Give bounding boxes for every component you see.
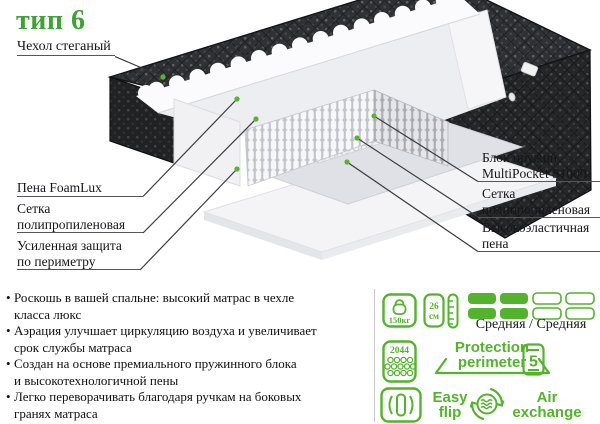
label-mesh-right: Сетка полипропиленовая	[478, 186, 600, 218]
list-item: • Роскошь в вашей спальне: высокий матра…	[6, 290, 348, 323]
svg-text:см: см	[429, 311, 439, 321]
firmness-scale-icon	[468, 292, 596, 320]
easy-flip-label: Easy flip	[427, 391, 473, 420]
firmness-label: Средняя / Средняя	[466, 317, 596, 333]
label-perimeter: Усиленная защита по периметру	[17, 238, 140, 270]
air-line2: exchange	[504, 406, 590, 421]
label-cover: Чехол стеганый	[17, 39, 115, 56]
air-exchange-label: Air exchange	[504, 391, 590, 420]
svg-text:150кг: 150кг	[389, 315, 411, 325]
bullet-text: Создан на основе премиального пружинного…	[14, 356, 348, 389]
bullet-marker: •	[6, 356, 14, 389]
bullet-text: Роскошь в вашей спальне: высокий матрас …	[14, 290, 348, 323]
list-item: • Легко переворачивать благодаря ручкам …	[6, 389, 348, 422]
mattress-infographic: тип 6	[0, 0, 600, 424]
vertical-divider	[374, 289, 375, 422]
bullet-marker: •	[6, 389, 14, 422]
protection-perimeter-label: Protection perimeter	[428, 341, 556, 370]
label-foamlux: Пена FoamLux	[17, 180, 143, 197]
easy-flip-icon	[380, 387, 422, 423]
label-elastic-foam: Высокоэластичная пена	[478, 220, 600, 252]
svg-text:2044: 2044	[390, 346, 409, 356]
bullet-marker: •	[6, 290, 14, 323]
springs-count-icon: 2044	[382, 340, 417, 383]
list-item: • Аэрация улучшает циркуляцию воздуха и …	[6, 323, 348, 356]
protection-line2: perimeter	[428, 356, 556, 371]
bullet-marker: •	[6, 323, 14, 356]
air-exchange-icon	[468, 385, 506, 423]
max-weight-icon: 150кг	[382, 293, 417, 328]
ruler-icon	[447, 293, 459, 329]
bullet-text: Аэрация улучшает циркуляцию воздуха и ув…	[14, 323, 348, 356]
list-item: • Создан на основе премиального пружинно…	[6, 356, 348, 389]
flip-line2: flip	[427, 406, 473, 421]
height-icon: 26 см	[423, 293, 445, 328]
label-spring-block: Блок пружин MultiPocket S1000	[478, 150, 600, 182]
label-mesh-left: Сетка полипропиленовая	[17, 201, 143, 233]
feature-bullet-list: • Роскошь в вашей спальне: высокий матра…	[6, 290, 348, 422]
bullet-text: Легко переворачивать благодаря ручкам на…	[14, 389, 348, 422]
